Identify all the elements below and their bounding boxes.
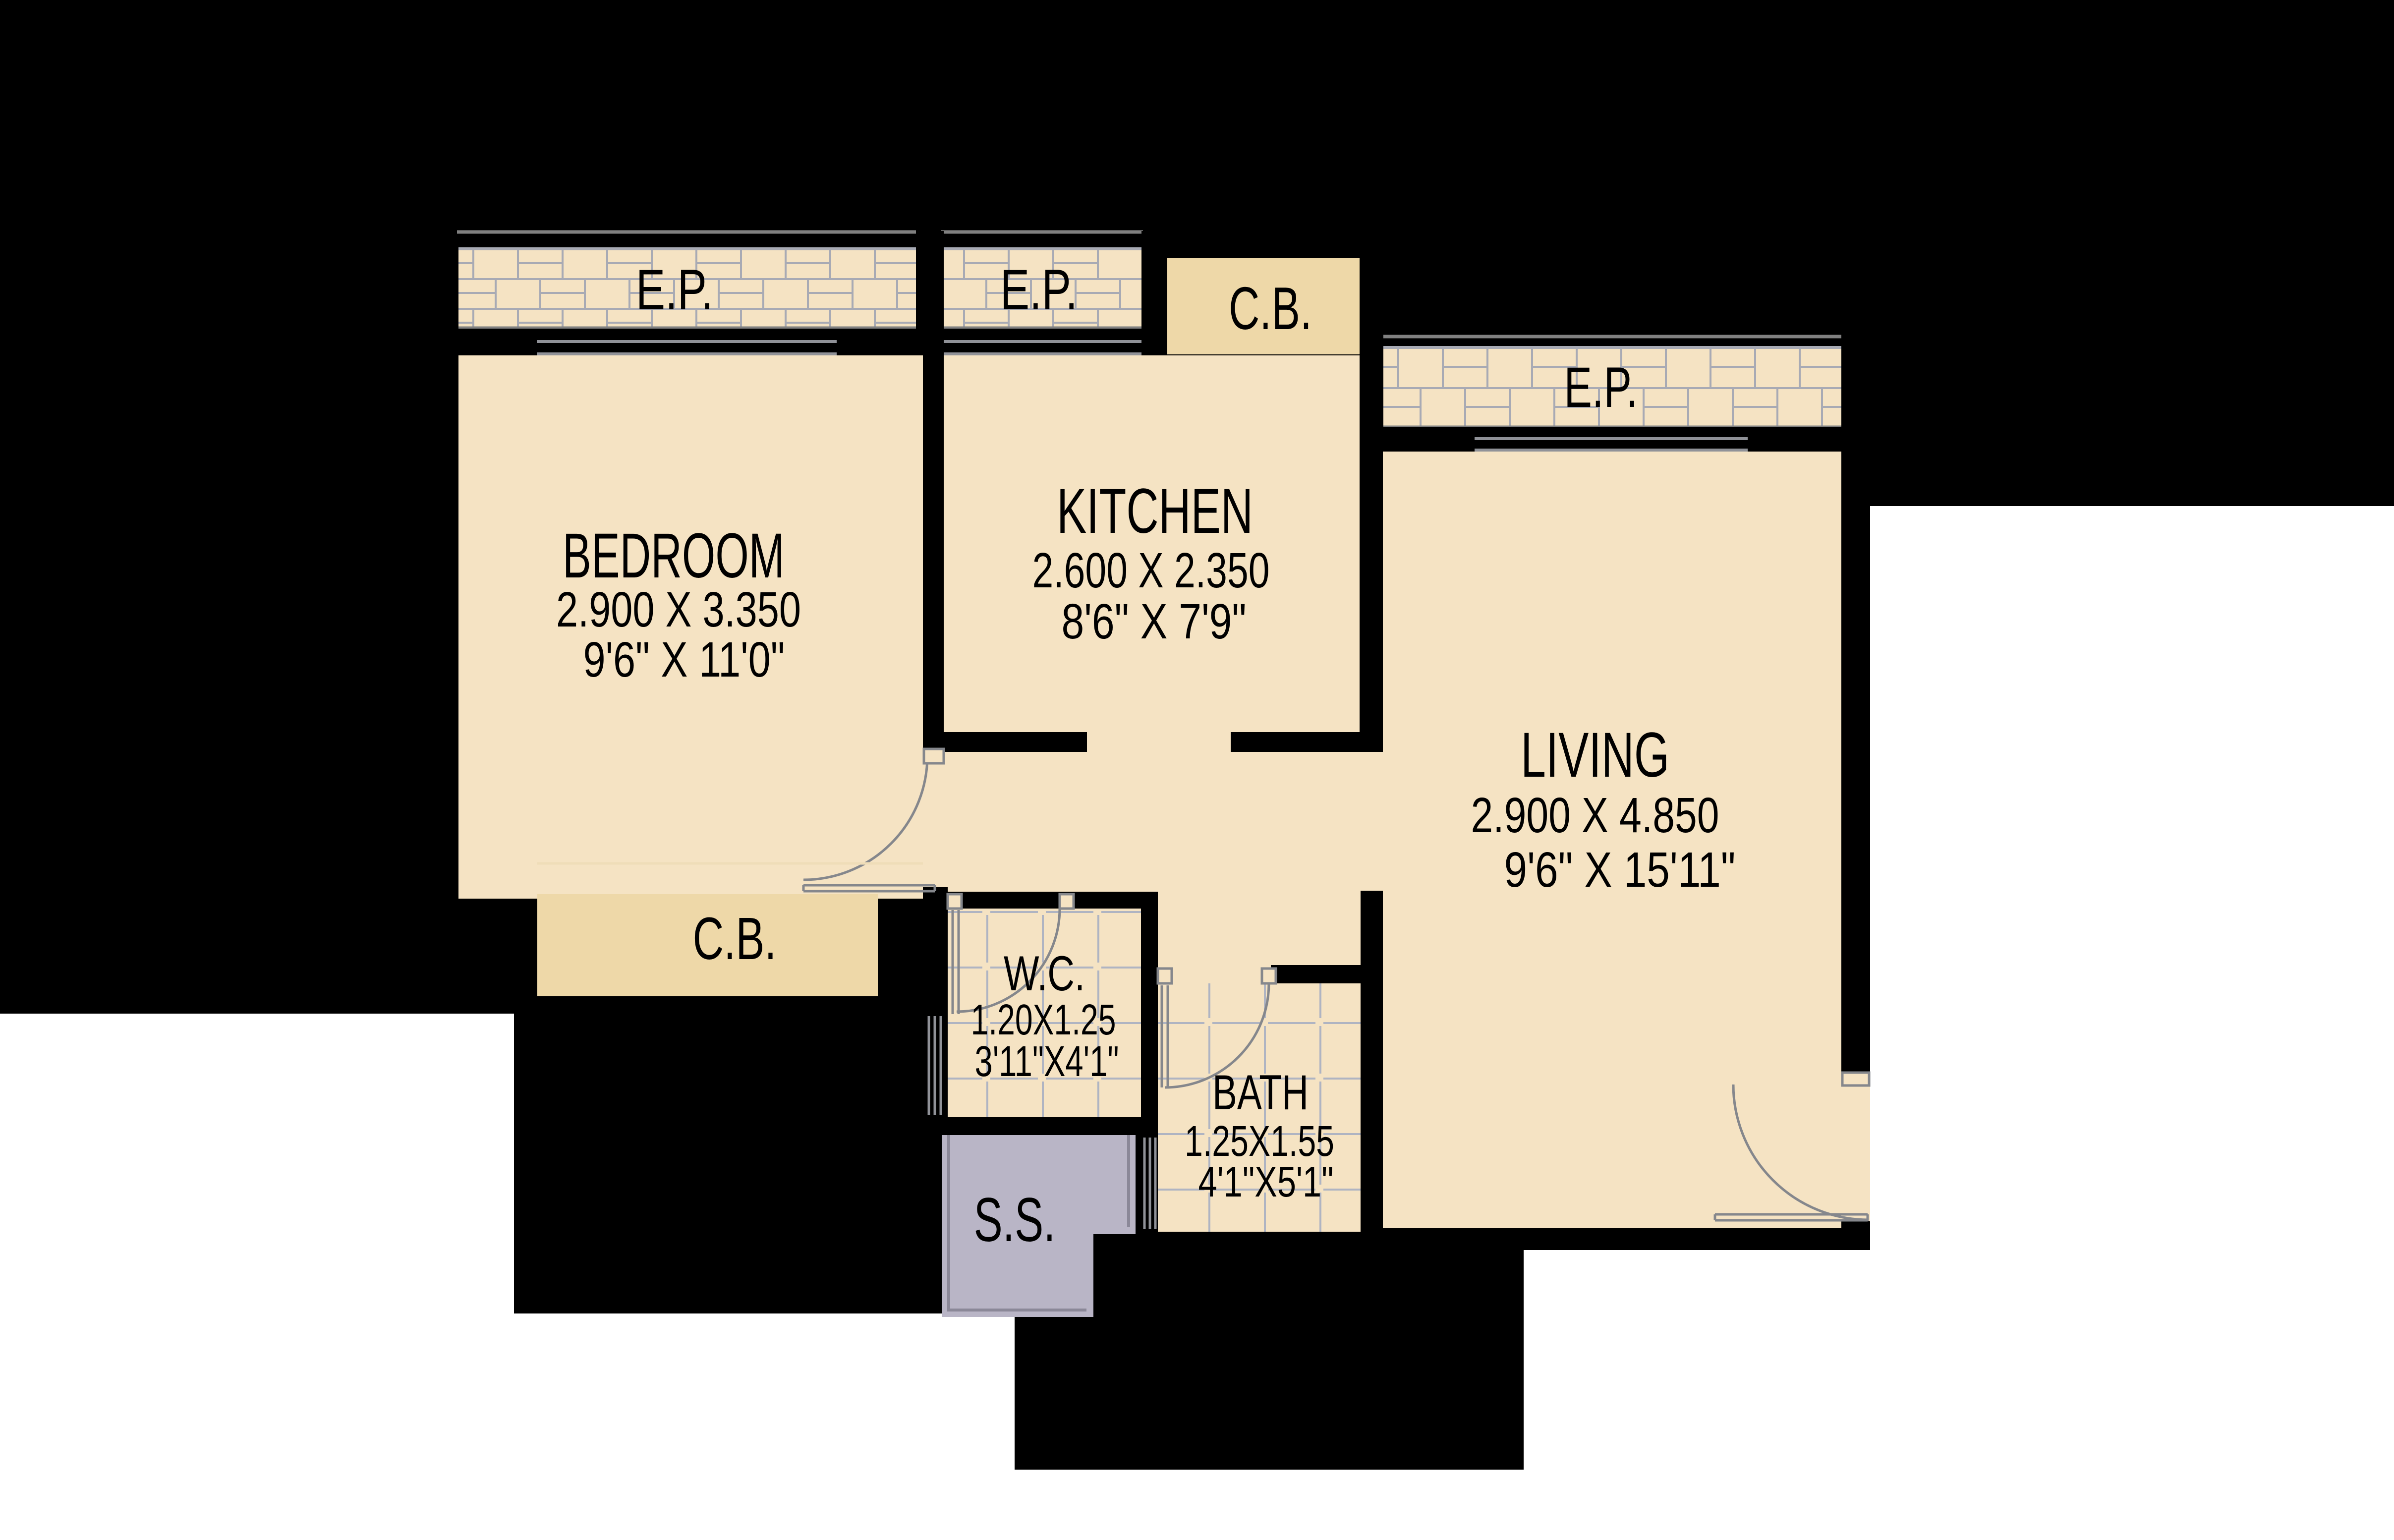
svg-text:C.B.: C.B. bbox=[1229, 275, 1312, 342]
svg-text:S.S.: S.S. bbox=[974, 1186, 1056, 1255]
svg-text:LIVING: LIVING bbox=[1521, 720, 1669, 791]
svg-text:4'1"X5'1": 4'1"X5'1" bbox=[1198, 1158, 1334, 1206]
svg-text:2.900 X 3.350: 2.900 X 3.350 bbox=[556, 582, 801, 637]
svg-text:8'6" X 7'9": 8'6" X 7'9" bbox=[1062, 594, 1247, 649]
svg-text:E.P.: E.P. bbox=[1564, 356, 1638, 419]
svg-text:KITCHEN: KITCHEN bbox=[1057, 476, 1253, 547]
svg-text:BEDROOM: BEDROOM bbox=[563, 520, 785, 591]
svg-text:2.600 X 2.350: 2.600 X 2.350 bbox=[1032, 543, 1270, 598]
svg-text:3'11"X4'1": 3'11"X4'1" bbox=[975, 1037, 1119, 1085]
svg-text:9'6" X 15'11": 9'6" X 15'11" bbox=[1504, 842, 1736, 898]
svg-text:1.20X1.25: 1.20X1.25 bbox=[971, 996, 1116, 1044]
svg-text:2.900 X 4.850: 2.900 X 4.850 bbox=[1471, 788, 1719, 843]
svg-text:BATH: BATH bbox=[1212, 1065, 1309, 1120]
svg-text:W.C.: W.C. bbox=[1004, 946, 1085, 1001]
svg-text:E.P.: E.P. bbox=[1000, 258, 1078, 322]
svg-text:E.P.: E.P. bbox=[636, 258, 713, 322]
svg-text:9'6" X 11'0": 9'6" X 11'0" bbox=[583, 632, 785, 687]
svg-text:C.B.: C.B. bbox=[693, 905, 777, 972]
